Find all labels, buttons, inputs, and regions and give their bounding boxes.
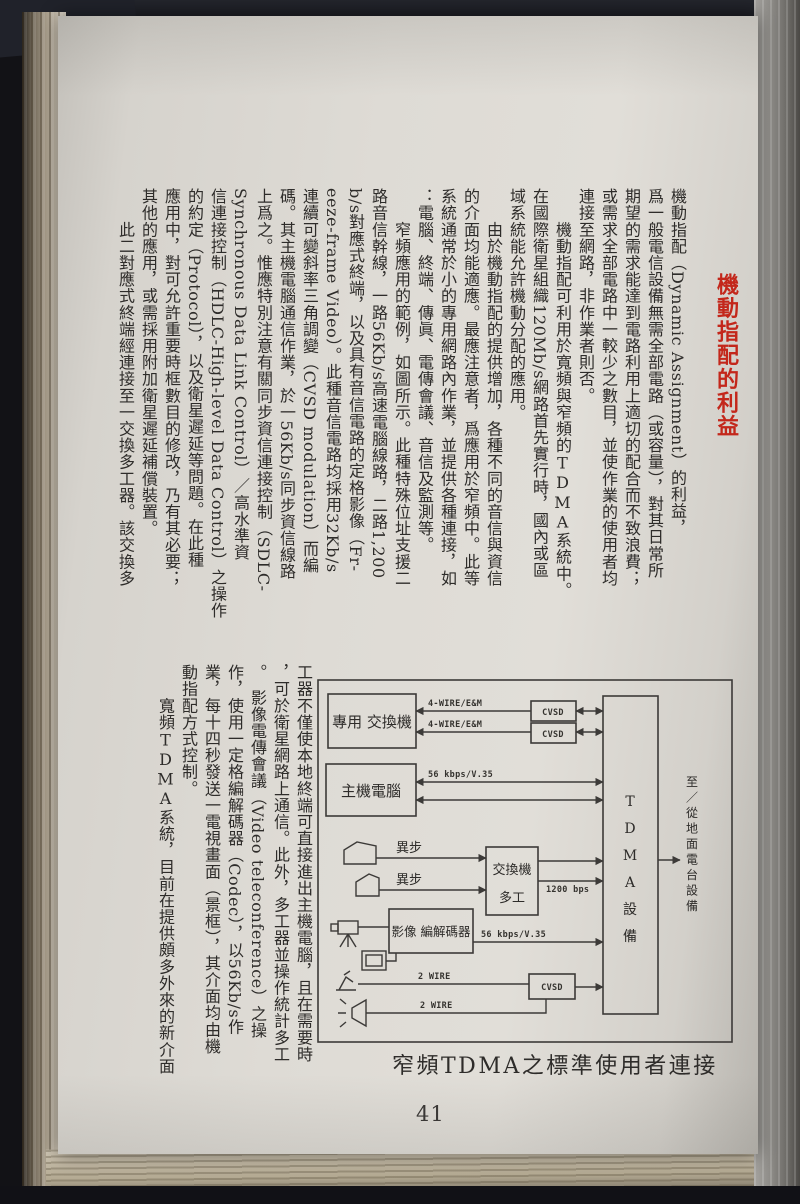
- text-column: 由於機動指配的提供增加，各種不同的音信與資信: [485, 188, 501, 668]
- text-column: ，可於衛星網路上通信。此外，多工器並操作統計多工: [272, 664, 288, 1078]
- camera-lens-icon: [331, 924, 338, 931]
- text-column: 路音信幹線，一路56Kb/s高速電腦線路，二路1,200: [370, 188, 386, 668]
- bps1200-label: 1200 bps: [546, 885, 589, 895]
- text-column: 或需求全部電路中一較少之數目，並使作業的使用者均: [600, 188, 616, 668]
- text-column: 工器不僅使本地終端可直接進出主機電腦，且在需要時: [295, 664, 311, 1078]
- camera-tripod-icon: [340, 934, 356, 947]
- text-column: b/s對應式終端，以及具有音信電路的定格影像（Fr-: [347, 188, 363, 668]
- page-number: 41: [416, 1102, 445, 1126]
- camera-icon: [338, 921, 358, 934]
- pbx-label: 專用 交換機: [332, 713, 412, 731]
- text-column: eeze-frame Video）。此種音信電路均採用32Kb/s: [324, 188, 340, 668]
- host-computer-label: 主機電腦: [341, 782, 401, 800]
- telephone-icon: [336, 971, 356, 990]
- text-column: 。 影像電傳會議（Video teleconference）之操: [249, 664, 265, 1078]
- tdma-equipment-label: TDMA設備: [623, 794, 637, 945]
- text-column: 碼。其主機電腦通信作業，於一56Kb/s同步資信線路: [278, 188, 294, 668]
- text-column: 的約定（Protocol），以及衛星遲延等問題。在此種: [186, 188, 202, 668]
- text-column: 在國際衛星組織120Mb/s網路首先實行時，國內或區: [531, 188, 547, 668]
- text-column: 機動指配（Dynamic Assignment）的利益，: [669, 188, 685, 668]
- text-column: 業，每十四秒發送一電視畫面（景框），其介面均由機: [203, 664, 219, 1078]
- monitor-screen-icon: [366, 955, 382, 966]
- text-column: 此二對應式終端經連接至一交換多工器。該交換多: [117, 188, 133, 668]
- text-column: ：電腦、終端、傳眞、電傳會議、音信及監測等。: [416, 188, 432, 668]
- video-codec-label: 影像 編解碼器: [392, 924, 471, 939]
- article-title: 機動指配的利益: [713, 188, 737, 668]
- cvsd-label-1: CVSD: [542, 708, 564, 718]
- v35-label-2: 56 kbps/V.35: [481, 930, 546, 940]
- monitor-codec-line: [386, 953, 396, 961]
- diagram-border: [318, 680, 732, 1042]
- async-label-2: 異步: [396, 873, 422, 888]
- text-column: 期望的需求能達到電路利用上適切的配合而不致浪費；: [623, 188, 639, 668]
- v35-label-1: 56 kbps/V.35: [428, 770, 493, 780]
- photo-shadow: [0, 1186, 800, 1204]
- article-upper-block: 機動指配的利益 機動指配（Dynamic Assignment）的利益，爲一般電…: [95, 188, 737, 668]
- switch-label: 交換機: [492, 862, 531, 878]
- text-column: 動指配方式控制。: [180, 664, 196, 1078]
- book-spine-gutter: [754, 0, 800, 1204]
- text-column: 連接至網路，非作業者則否。: [577, 188, 593, 668]
- text-column: 上爲之。惟應特別注意有關同步資信連接控制（SDLC-: [255, 188, 271, 668]
- text-column: 系統通常於小的專用網路內作業，並提供各種連接，如: [439, 188, 455, 668]
- text-column: 爲一般電信設備無需全部電路（或容量），對其日常所: [646, 188, 662, 668]
- text-column: 作，使用一定格編解碼器（Codec），以56Kb/s作: [226, 664, 242, 1078]
- figure-caption: 窄頻TDMA之標準使用者連接: [392, 1048, 718, 1080]
- text-column: 的介面均能適應。最應注意者，爲應用於窄頻中。此等: [462, 188, 478, 668]
- to-earth-station-label: 至／從地面電台設備: [686, 775, 698, 913]
- text-column: 其他的應用，或需採用附加衛星遲延補償裝置。: [140, 188, 156, 668]
- terminal-icon-1: [344, 842, 376, 864]
- tdma-diagram: 專用 交換機 主機電腦 交換機 多工 影像 編解碼器 TDMA設備 CVSD C…: [316, 674, 756, 1046]
- cvsd-label-3: CVSD: [541, 983, 563, 993]
- text-column: 應用中，對可允許重要時框數目的修改，乃有其必要；: [163, 188, 179, 668]
- text-column: 寬頻TDMA系統，目前在提供頗多外來的新介面: [157, 664, 173, 1078]
- cvsd-label-2: CVSD: [542, 730, 564, 740]
- text-column: 連續可變斜率三角調變（CVSD modulation）而編: [301, 188, 317, 668]
- two-wire-label-2: 2 WIRE: [420, 1001, 453, 1011]
- four-wire-label-2: 4-WIRE/E&M: [428, 720, 482, 730]
- mux-label: 多工: [499, 890, 525, 906]
- article-lower-block: 工器不僅使本地終端可直接進出主機電腦，且在需要時，可於衛星網路上通信。此外，多工…: [95, 664, 311, 1078]
- four-wire-label-1: 4-WIRE/E&M: [428, 699, 482, 709]
- two-wire-label-1: 2 WIRE: [418, 972, 451, 982]
- text-column: 信連接控制（HDLC-High-level Data Control）之操作: [209, 188, 225, 668]
- terminal-icon-2: [356, 874, 379, 896]
- text-column: 域系統能允許機動分配的應用。: [508, 188, 524, 668]
- text-column: 窄頻應用的範例，如圖所示。此種特殊位址支援二: [393, 188, 409, 668]
- speaker-cvsd-line: [366, 999, 546, 1013]
- speaker-icon: [338, 999, 366, 1027]
- text-column: 機動指配可利用於寬頻與窄頻的TDMA系統中。: [554, 188, 570, 668]
- text-column: Synchronous Data Link Control）／高水準資: [232, 188, 248, 668]
- async-label-1: 異步: [396, 841, 422, 856]
